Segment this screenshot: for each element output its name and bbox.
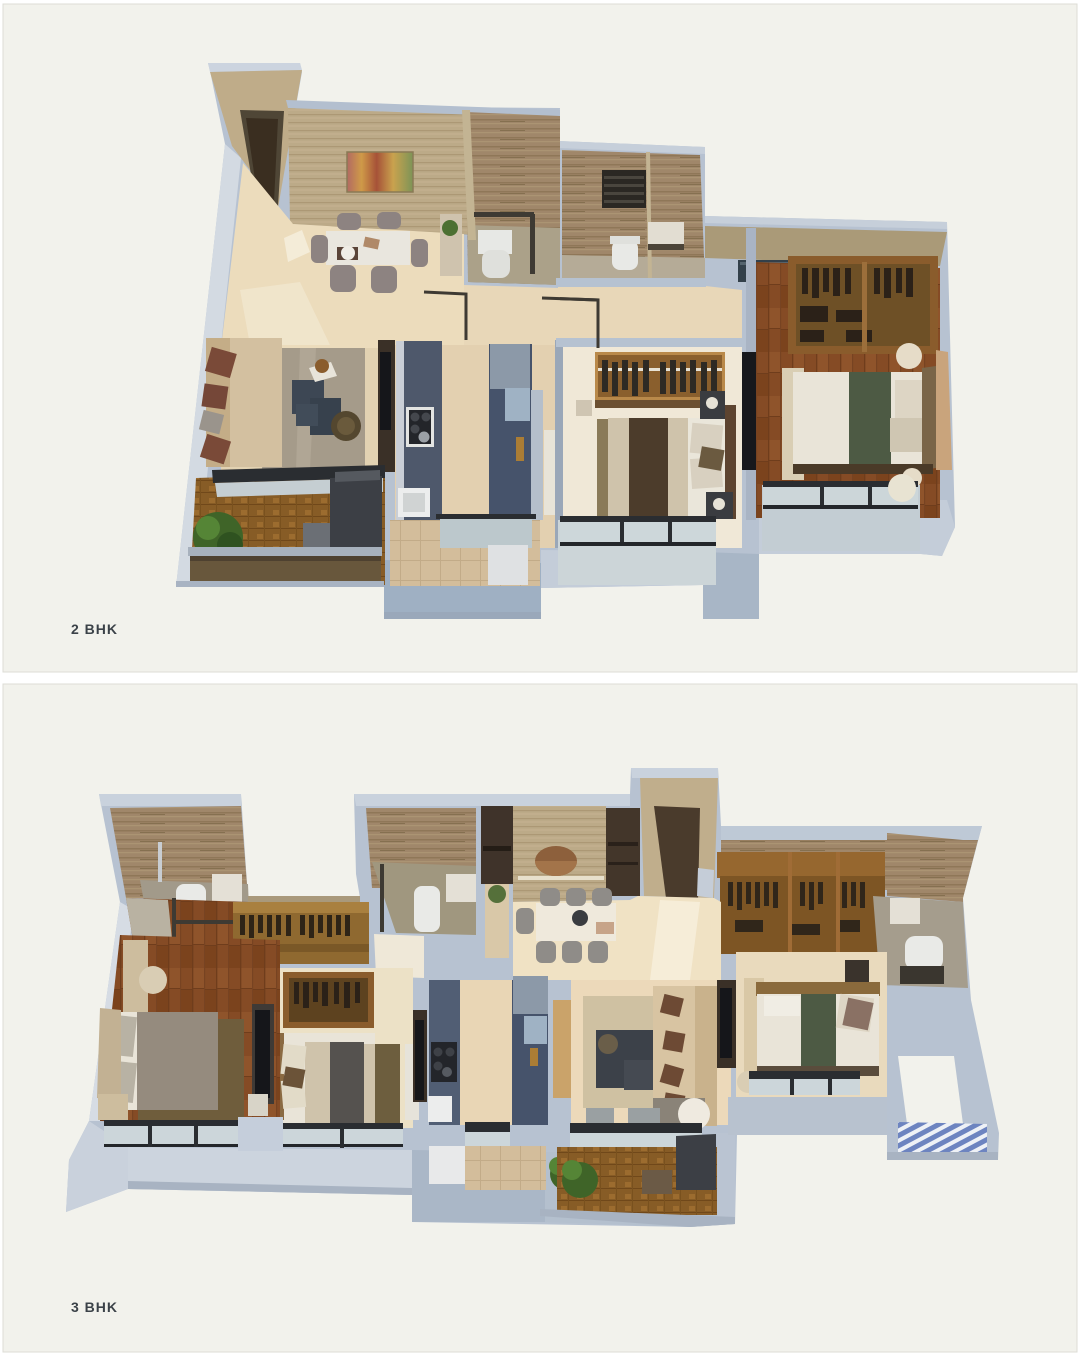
svg-text:3 BHK: 3 BHK [71, 1299, 118, 1315]
svg-text:2 BHK: 2 BHK [71, 621, 118, 637]
